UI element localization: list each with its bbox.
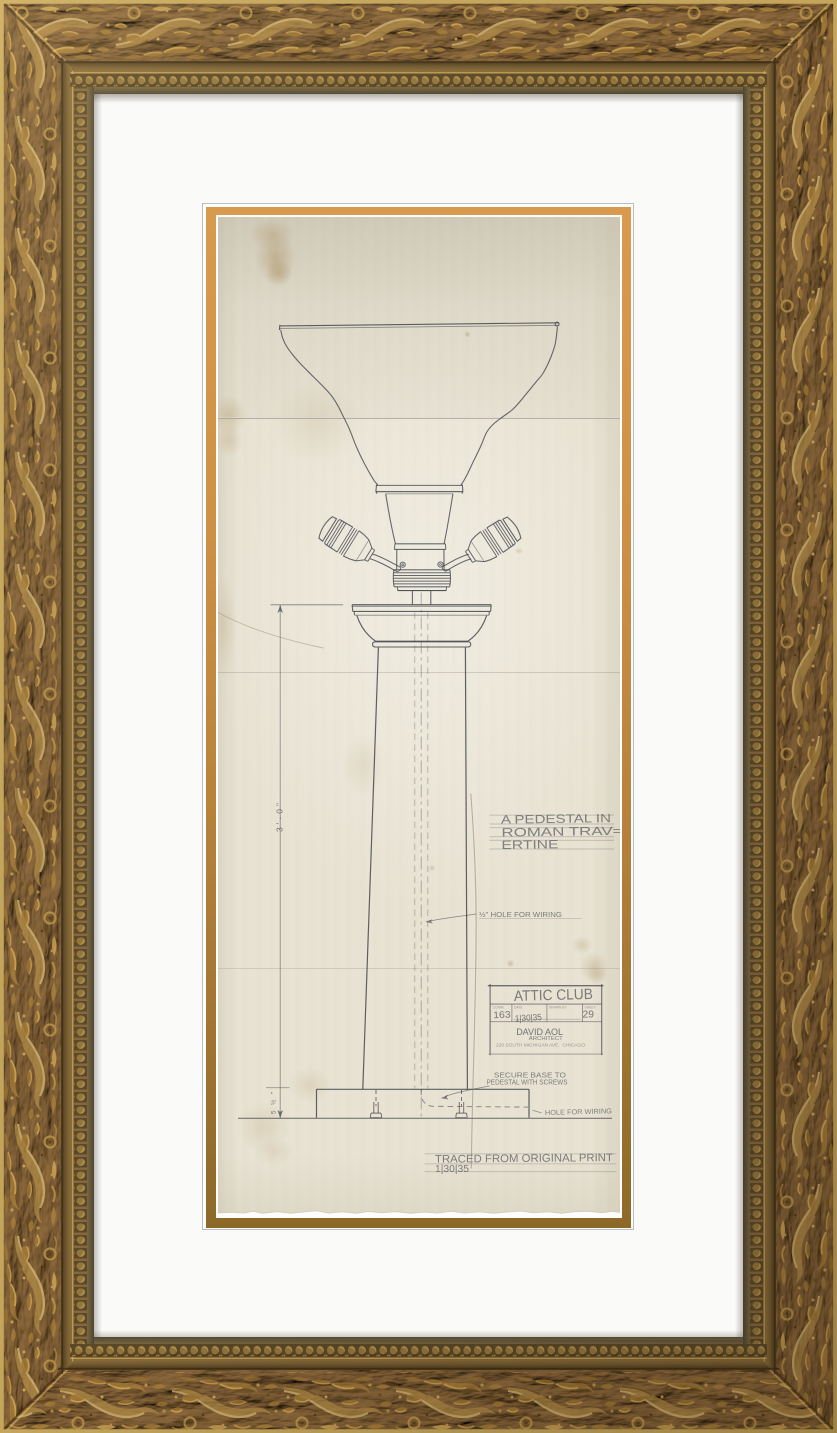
svg-text:½" HOLE FOR WIRING: ½" HOLE FOR WIRING (479, 910, 562, 918)
svg-text:1|30|35: 1|30|35 (514, 1012, 541, 1023)
svg-text:220 SOUTH MICHIGAN AVE. CHICA: 220 SOUTH MICHIGAN AVE. CHICAGO (496, 1042, 585, 1047)
svg-text:29: 29 (582, 1009, 594, 1020)
svg-text:5½": 5½" (269, 1092, 277, 1114)
svg-text:3'-0": 3'-0" (274, 803, 284, 832)
svg-text:HOLE FOR WIRING: HOLE FOR WIRING (544, 1108, 611, 1117)
svg-text:PEDESTAL WITH SCREWS: PEDESTAL WITH SCREWS (486, 1079, 567, 1086)
svg-text:163: 163 (492, 1009, 510, 1021)
svg-text:1|30|35: 1|30|35 (435, 1164, 469, 1175)
svg-text:COMM: COMM (493, 1005, 504, 1009)
svg-text:ATTIC CLUB: ATTIC CLUB (513, 985, 592, 1004)
svg-text:ERTINE: ERTINE (501, 837, 558, 852)
svg-text:SECURE BASE TO: SECURE BASE TO (493, 1072, 566, 1079)
svg-text:DATE: DATE (514, 1005, 523, 1009)
svg-text:DRAWN BY: DRAWN BY (549, 1005, 567, 1009)
svg-text:ARCHITECT: ARCHITECT (528, 1036, 563, 1042)
